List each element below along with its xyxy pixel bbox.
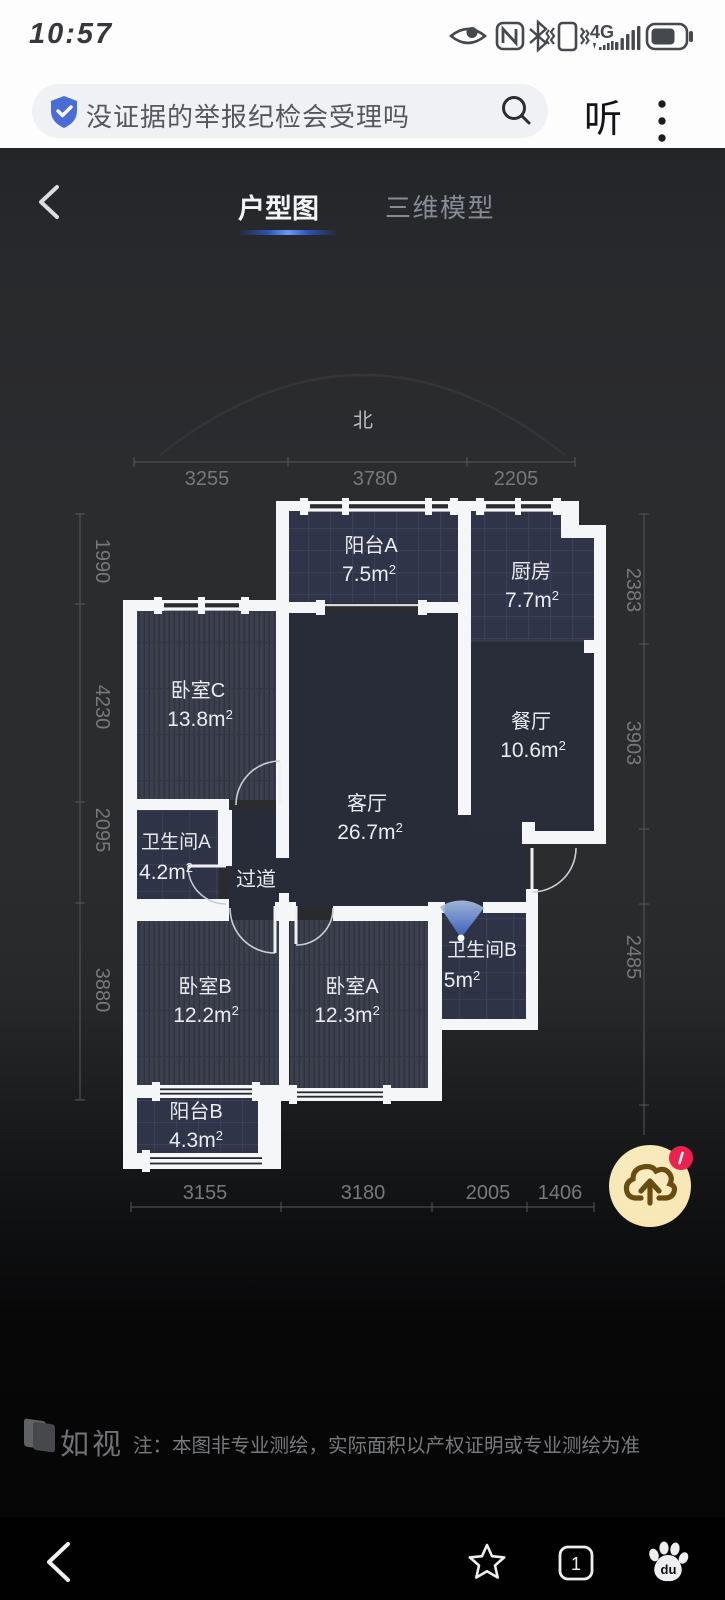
svg-text:10.6m2: 10.6m2: [500, 738, 566, 762]
svg-text:2383: 2383: [622, 568, 644, 613]
svg-text:阳台A: 阳台A: [344, 534, 398, 557]
svg-text:北: 北: [353, 409, 373, 432]
svg-text:1406: 1406: [538, 1182, 583, 1204]
svg-text:3903: 3903: [622, 721, 644, 766]
svg-text:12.3m2: 12.3m2: [314, 1003, 380, 1027]
svg-text:卫生间B: 卫生间B: [447, 939, 517, 961]
svg-text:du: du: [661, 1562, 677, 1577]
svg-text:3255: 3255: [185, 468, 230, 490]
svg-text:厨房: 厨房: [511, 560, 551, 583]
svg-text:卧室C: 卧室C: [171, 679, 225, 702]
svg-text:12.2m2: 12.2m2: [173, 1003, 239, 1027]
svg-text:3180: 3180: [341, 1182, 386, 1204]
svg-text:7.7m2: 7.7m2: [505, 588, 559, 612]
svg-text:2005: 2005: [466, 1182, 511, 1204]
svg-text:卫生间A: 卫生间A: [141, 831, 211, 853]
svg-text:2095: 2095: [91, 808, 113, 853]
svg-text:3880: 3880: [91, 968, 113, 1013]
svg-text:13.8m2: 13.8m2: [167, 707, 233, 731]
svg-text:阳台B: 阳台B: [169, 1100, 222, 1123]
svg-text:4.3m2: 4.3m2: [169, 1128, 223, 1152]
svg-text:卧室B: 卧室B: [178, 975, 231, 998]
svg-text:3155: 3155: [183, 1182, 228, 1204]
svg-text:餐厅: 餐厅: [511, 710, 551, 733]
svg-text:卧室A: 卧室A: [325, 975, 379, 998]
svg-text:26.7m2: 26.7m2: [337, 820, 403, 844]
svg-text:4G: 4G: [590, 22, 614, 42]
svg-text:客厅: 客厅: [347, 792, 387, 815]
svg-text:1990: 1990: [91, 539, 113, 584]
svg-text:7.5m2: 7.5m2: [342, 562, 396, 586]
svg-text:4230: 4230: [91, 685, 113, 730]
svg-text:过道: 过道: [236, 868, 276, 891]
svg-text:2205: 2205: [494, 468, 539, 490]
svg-text:2485: 2485: [622, 935, 644, 980]
svg-text:4.2m2: 4.2m2: [139, 860, 193, 884]
svg-text:1: 1: [571, 1554, 581, 1574]
svg-text:3780: 3780: [353, 468, 398, 490]
